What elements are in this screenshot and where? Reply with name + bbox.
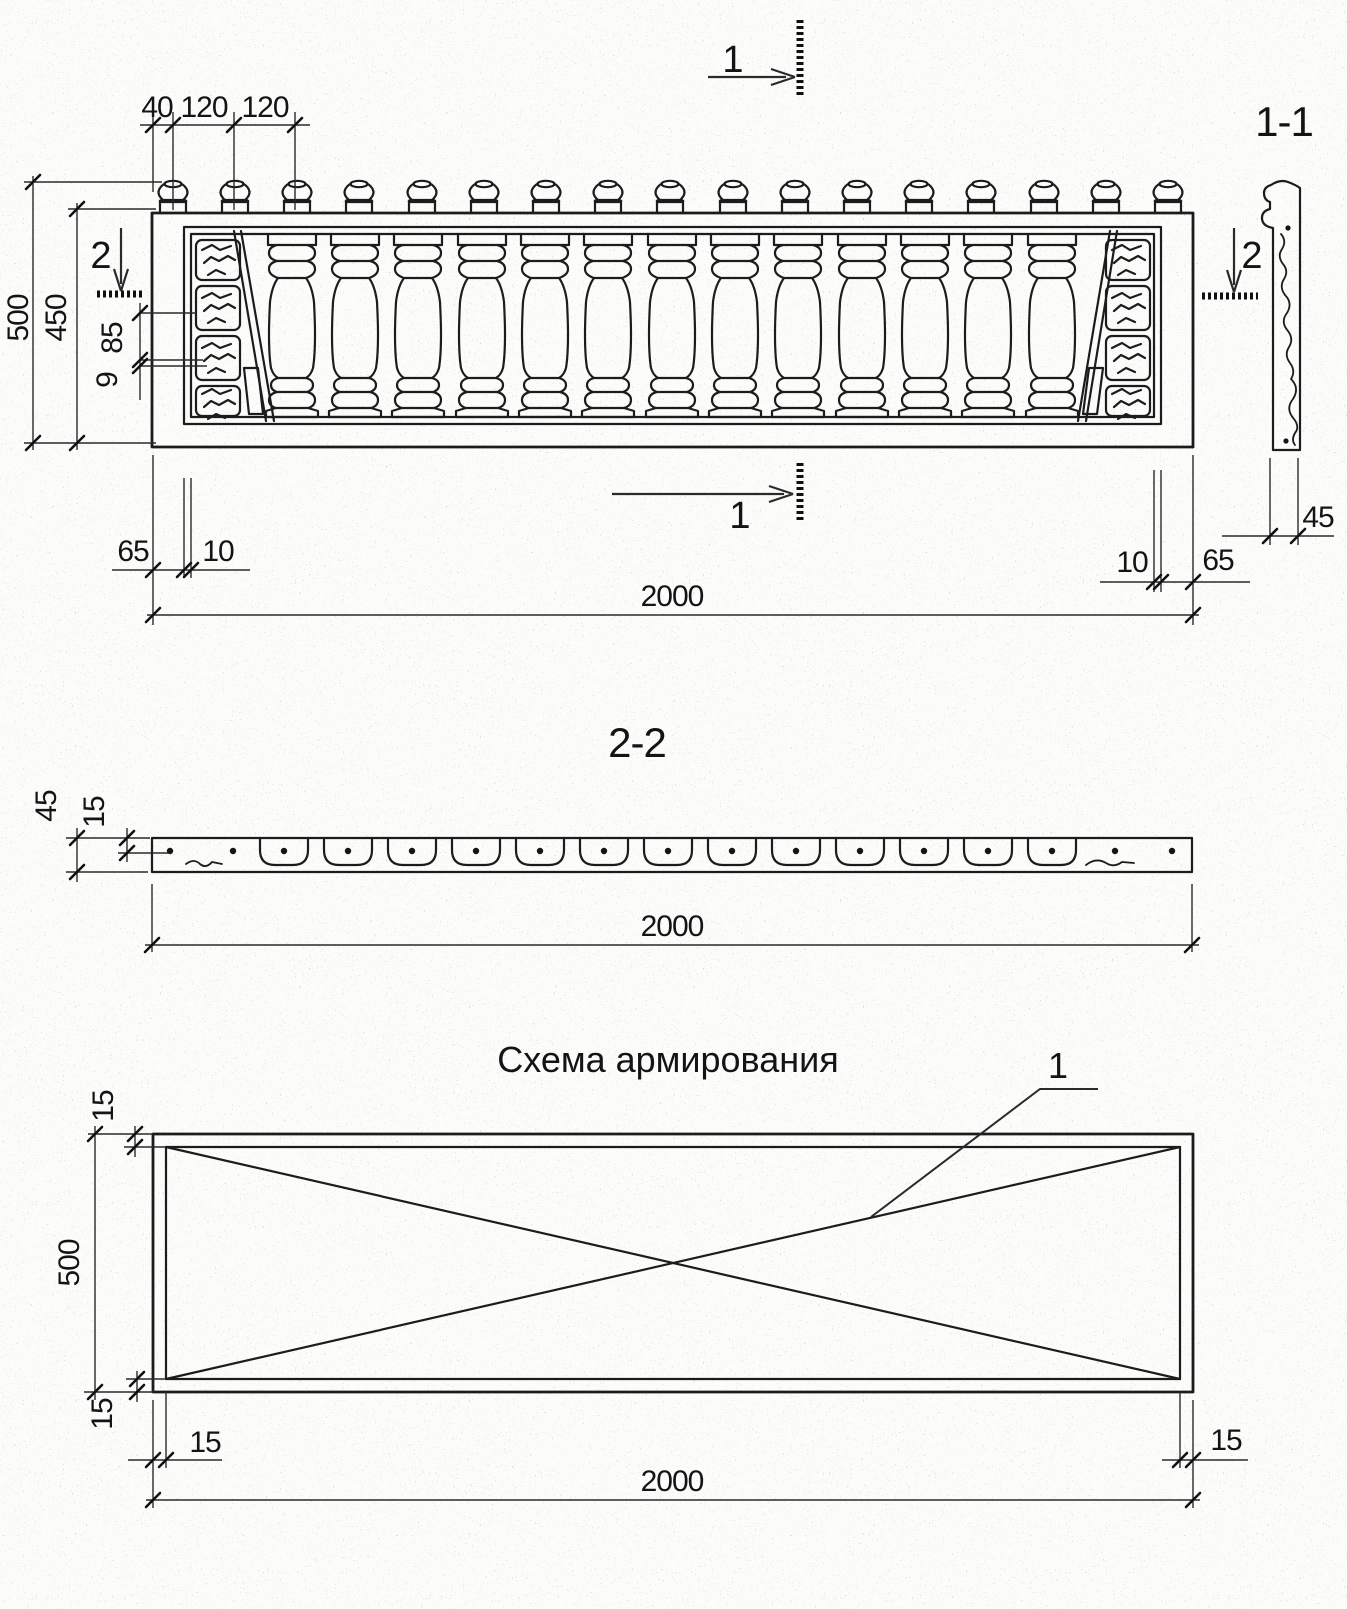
paper-noise-texture: [0, 0, 1347, 1609]
dim-label-85: 85: [96, 322, 129, 354]
section-mark-2-left-label: 2: [90, 235, 111, 277]
drawing-sheet: 40 120 120 500 450: [0, 0, 1347, 1609]
section-1-1-title: 1-1: [1255, 98, 1313, 145]
dim-label-500: 500: [2, 294, 35, 341]
dim-label-2000-2-2: 2000: [641, 910, 704, 943]
dim-label-65-left: 65: [117, 535, 149, 568]
dim-label-15-scheme-right: 15: [1210, 1424, 1242, 1457]
dim-label-15-scheme-bottom: 15: [86, 1398, 119, 1430]
section-mark-2-right-label: 2: [1241, 235, 1262, 277]
dim-label-500-scheme: 500: [53, 1239, 86, 1286]
dim-label-120b: 120: [241, 91, 288, 124]
dim-label-15-scheme-left: 15: [189, 1426, 221, 1459]
dim-label-65-right: 65: [1202, 544, 1234, 577]
dim-label-45-profile: 45: [1302, 501, 1334, 534]
section-mark-1-bottom-label: 1: [729, 495, 750, 537]
dim-label-15-2-2: 15: [78, 796, 111, 828]
dim-label-40: 40: [141, 91, 173, 124]
dim-label-450: 450: [40, 294, 73, 341]
section-mark-1-top-label: 1: [722, 39, 743, 81]
rebar-callout-label: 1: [1048, 1045, 1068, 1086]
dim-label-15-scheme-top: 15: [87, 1090, 120, 1122]
dim-label-9: 9: [91, 372, 124, 388]
dim-label-2000-scheme: 2000: [641, 1465, 704, 1498]
dim-label-45-2-2: 45: [30, 790, 63, 822]
dim-label-10-right: 10: [1116, 546, 1148, 579]
section-2-2-title: 2-2: [608, 719, 666, 766]
reinforcement-title: Схема армирования: [497, 1039, 839, 1080]
dim-label-10-left: 10: [202, 535, 234, 568]
drawing-canvas: 40 120 120 500 450: [0, 0, 1347, 1609]
dim-label-120a: 120: [180, 91, 227, 124]
dim-label-2000-elevation: 2000: [641, 580, 704, 613]
